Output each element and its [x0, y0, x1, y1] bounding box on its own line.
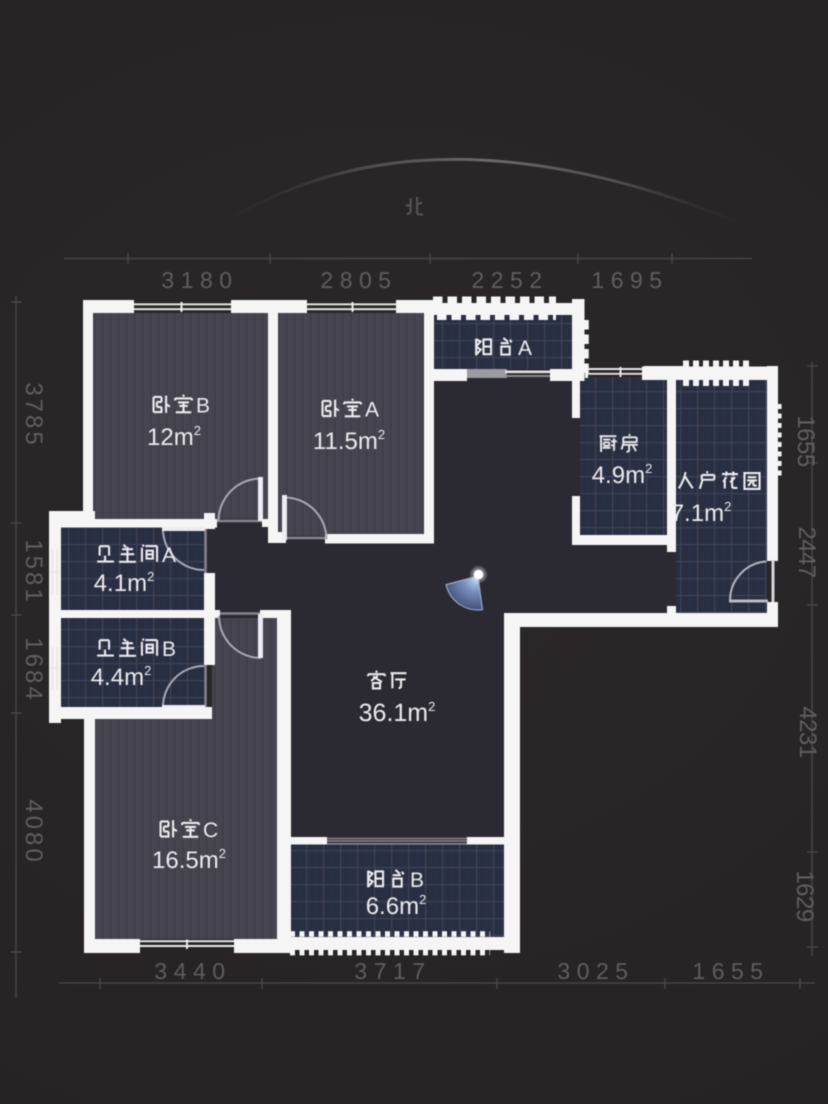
svg-text:A: A	[162, 544, 176, 567]
svg-text:3785: 3785	[20, 382, 47, 447]
svg-text:A: A	[518, 337, 532, 360]
svg-text:C: C	[203, 819, 218, 842]
svg-text:A: A	[365, 399, 379, 422]
svg-text:4.1m2: 4.1m2	[94, 569, 155, 597]
svg-text:6.6m2: 6.6m2	[366, 892, 427, 920]
svg-text:B: B	[196, 395, 210, 418]
svg-text:1655: 1655	[792, 415, 819, 467]
svg-text:36.1m2: 36.1m2	[359, 699, 436, 727]
svg-text:1695: 1695	[591, 267, 668, 293]
svg-text:7.1m2: 7.1m2	[671, 499, 732, 527]
svg-text:16.5m2: 16.5m2	[152, 846, 226, 874]
svg-text:1581: 1581	[20, 539, 47, 604]
svg-text:4.4m2: 4.4m2	[91, 663, 152, 691]
svg-text:B: B	[410, 869, 424, 892]
svg-text:B: B	[162, 638, 176, 661]
svg-text:2805: 2805	[320, 267, 397, 293]
svg-text:4.9m2: 4.9m2	[592, 461, 653, 489]
svg-text:3180: 3180	[161, 267, 238, 293]
svg-text:1684: 1684	[20, 637, 47, 702]
svg-text:2252: 2252	[471, 267, 548, 293]
svg-text:12m2: 12m2	[147, 423, 201, 451]
svg-text:3717: 3717	[354, 958, 431, 984]
svg-text:4231: 4231	[794, 706, 821, 758]
svg-text:3440: 3440	[154, 958, 231, 984]
svg-text:4080: 4080	[20, 799, 47, 864]
svg-text:11.5m2: 11.5m2	[313, 427, 385, 455]
svg-text:2447: 2447	[793, 526, 820, 578]
svg-text:1655: 1655	[692, 958, 769, 984]
svg-text:1629: 1629	[791, 870, 818, 922]
svg-text:3025: 3025	[557, 958, 634, 984]
